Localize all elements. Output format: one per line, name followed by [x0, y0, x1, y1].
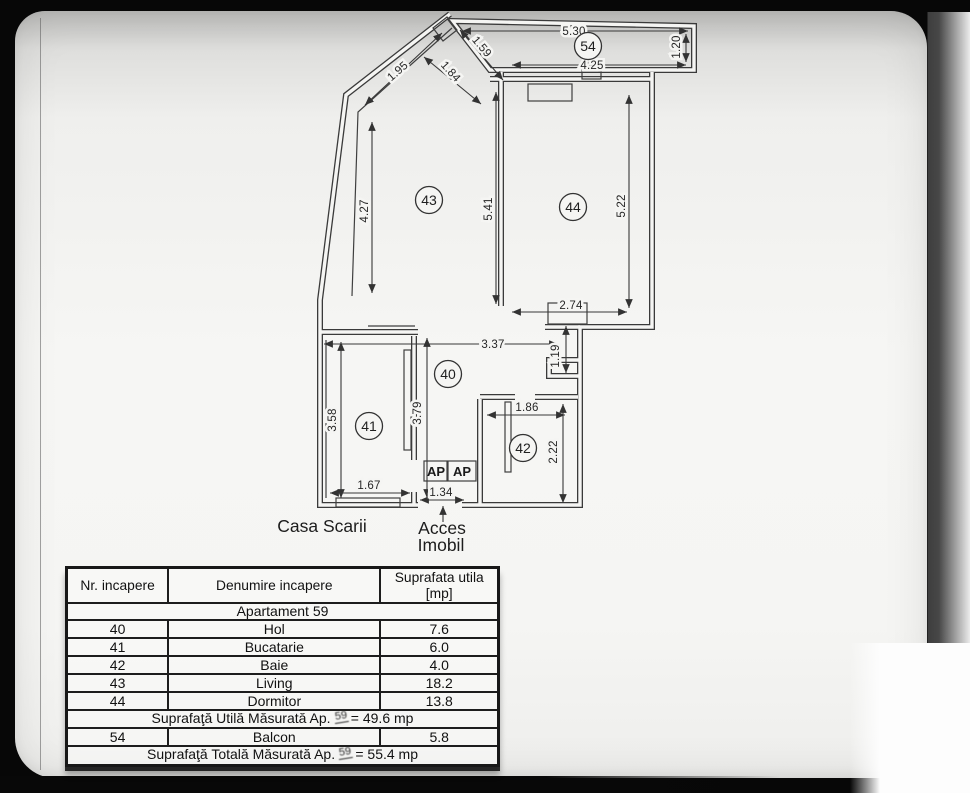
table-row: 41 Bucatarie 6.0: [67, 638, 499, 656]
table-row: 40 Hol 7.6: [67, 620, 499, 638]
room-name-cell: Living: [168, 674, 380, 692]
room-area-cell: 6.0: [380, 638, 498, 656]
room-nr-cell: 43: [67, 674, 169, 692]
room-area-cell: 4.0: [380, 656, 498, 674]
room-name-cell: Baie: [168, 656, 380, 674]
room-nr-cell: 44: [67, 692, 169, 710]
room-areas-table: Nr. incapere Denumire incapere Suprafata…: [65, 566, 500, 767]
header-nr-incapere: Nr. incapere: [67, 568, 169, 604]
scanned-floor-plan-photo: 5.30 4.25 1.20 1.59 1.84 1.95 4.27 5.41 …: [0, 0, 970, 793]
table-header-row: Nr. incapere Denumire incapere Suprafata…: [67, 568, 499, 604]
room-nr-cell: 54: [67, 728, 169, 746]
page-fold-line: [40, 18, 41, 770]
room-area-cell: 13.8: [380, 692, 498, 710]
summary-util-prefix: Suprafaţă Utilă Măsurată Ap.: [152, 710, 331, 726]
summary-total-label: Suprafaţă Totală Măsurată Ap.59= 55.4 mp: [67, 746, 499, 765]
apartment-group-label: Apartament 59: [67, 603, 499, 620]
room-name-cell: Hol: [168, 620, 380, 638]
table-row: 42 Baie 4.0: [67, 656, 499, 674]
room-name-cell: Balcon: [168, 728, 380, 746]
photo-bottom-edge: [0, 776, 780, 793]
room-area-cell: 18.2: [380, 674, 498, 692]
room-area-cell: 5.8: [380, 728, 498, 746]
balcon-row: 54 Balcon 5.8: [67, 728, 499, 746]
summary-total-suffix: = 55.4 mp: [355, 746, 418, 762]
summary-util-label: Suprafaţă Utilă Măsurată Ap.59= 49.6 mp: [67, 710, 499, 728]
room-name-cell: Dormitor: [168, 692, 380, 710]
summary-util-row: Suprafaţă Utilă Măsurată Ap.59= 49.6 mp: [67, 710, 499, 728]
page-right-edge-shadow: [925, 12, 970, 662]
room-nr-cell: 41: [67, 638, 169, 656]
room-nr-cell: 42: [67, 656, 169, 674]
room-nr-cell: 40: [67, 620, 169, 638]
table-row: 44 Dormitor 13.8: [67, 692, 499, 710]
summary-util-suffix: = 49.6 mp: [351, 710, 414, 726]
summary-total-row: Suprafaţă Totală Măsurată Ap.59= 55.4 mp: [67, 746, 499, 765]
header-denumire-incapere: Denumire incapere: [168, 568, 380, 604]
header-suprafata-line1: Suprafata utila: [395, 570, 484, 585]
summary-util-ap-number: 59: [333, 709, 349, 724]
room-area-cell: 7.6: [380, 620, 498, 638]
apartment-group-row: Apartament 59: [67, 603, 499, 620]
summary-total-ap-number: 59: [337, 745, 353, 760]
header-suprafata-utila: Suprafata utila [mp]: [380, 568, 498, 604]
summary-total-prefix: Suprafaţă Totală Măsurată Ap.: [147, 746, 335, 762]
room-name-cell: Bucatarie: [168, 638, 380, 656]
bottom-right-background: [850, 643, 970, 793]
header-suprafata-line2: [mp]: [426, 586, 453, 601]
table-row: 43 Living 18.2: [67, 674, 499, 692]
